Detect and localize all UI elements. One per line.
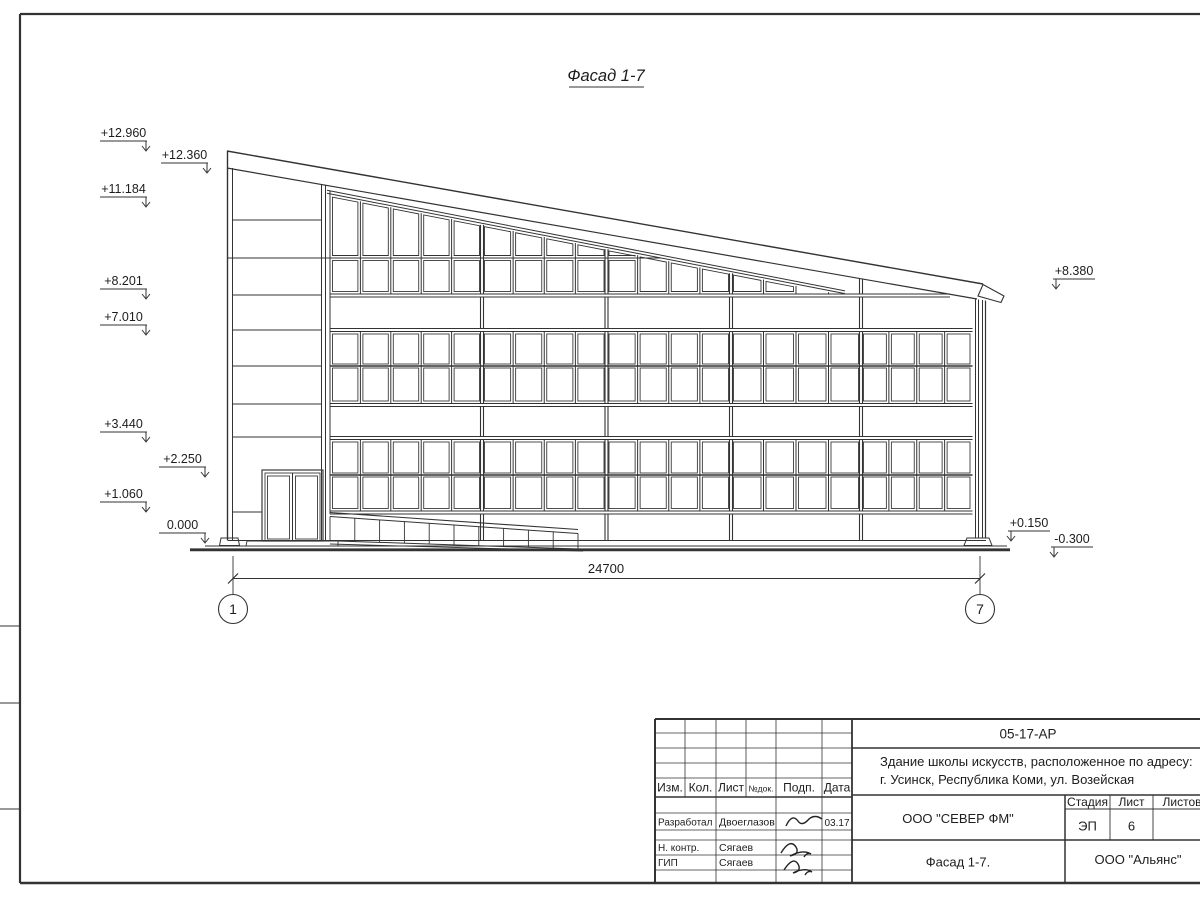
door-leaf [268,476,290,539]
window-pane [891,334,914,364]
window-pane [609,442,635,473]
glazing-pane [516,261,542,292]
glazing-pane [578,261,604,292]
window-pane [393,477,418,509]
elevation-value: +7.010 [104,310,143,324]
window-pane [702,368,728,401]
window-pane [393,334,418,364]
sheet-frame [0,14,1200,883]
elevation-marks: +12.960+12.360+11.184+8.201+7.010+3.440+… [100,126,1095,557]
tb-role-label: ГИП [658,858,678,869]
window-pane [454,442,479,473]
window-pane [333,368,358,401]
clerestory-glazing [330,191,863,514]
tb-stage-value: ЭП [1078,819,1097,834]
window-pane [947,334,970,364]
glazing-pane [734,275,762,291]
axis-number: 1 [229,601,237,617]
window-pane [454,477,479,509]
window-pane [864,334,887,364]
window-pane [424,368,449,401]
window-pane [702,477,728,509]
glazing-pane [393,261,418,292]
window-pane [516,368,542,401]
facade-drawing-canvas: Фасад 1-72470017+12.960+12.360+11.184+8.… [0,0,1200,900]
window-pane [363,442,388,473]
window-pane [734,334,762,364]
tb-column-header: Дата [824,781,851,795]
window-pane [831,368,859,401]
glazing-pane [640,257,666,292]
tb-doc-number: 05-17-АР [999,727,1056,742]
window-pane [766,442,794,473]
window-pane [891,477,914,509]
window-pane [547,442,573,473]
elevation-value: +1.060 [104,487,143,501]
glazing-pane [393,209,418,256]
window-pane [424,477,449,509]
tb-role-label: Разработал [658,817,713,829]
window-pane [363,334,388,364]
title-block: Изм.Кол.Лист№док.Подп.ДатаРазработалДвое… [655,719,1200,883]
window-pane [766,477,794,509]
window-pane [831,334,859,364]
elevation-mark-right: +0.150 [1007,516,1050,541]
window-pane [734,442,762,473]
window-pane [454,368,479,401]
glazing-pane [547,261,573,292]
glazing-pane [516,233,542,256]
window-pane [609,368,635,401]
elevation-mark-left: +12.360 [161,148,211,173]
window-pane [547,477,573,509]
window-pane [547,334,573,364]
clerestory-head-outer [327,190,845,291]
elevation-value: +8.201 [104,274,143,288]
glazing-pane [363,203,388,255]
tb-column-header: Подп. [783,781,815,795]
window-pane [799,442,827,473]
tb-sheet-value: 6 [1128,819,1135,834]
elevation-value: +3.440 [104,417,143,431]
window-pane [363,368,388,401]
window-pane [578,334,604,364]
glazing-pane [424,261,449,292]
tb-date: 03.17 [824,818,849,829]
glazing-pane [547,239,573,256]
window-pane [864,442,887,473]
tb-sheet-name: Фасад 1-7. [926,855,990,870]
elevation-value: +2.250 [163,452,202,466]
tb-column-header: Кол. [689,781,713,795]
signature [784,861,812,875]
roof-fascia-bottom [227,168,977,299]
elevation-mark-left: +2.250 [159,452,209,477]
glazing-pane [485,261,511,292]
tb-sheets-label: Листов [1163,795,1200,809]
tb-stage-label: Стадия [1067,795,1108,809]
signature [786,817,822,827]
window-pane [947,442,970,473]
window-pane [864,368,887,401]
window-pane [578,368,604,401]
window-pane [640,477,666,509]
window-pane [485,442,511,473]
window-pane [831,477,859,509]
elevation-value: 0.000 [167,518,198,532]
tb-person-name: Сягаев [719,857,754,869]
facade-band-lines [228,258,973,514]
elevation-mark-left: +7.010 [100,310,150,335]
window-pane [393,442,418,473]
landing-edge [246,541,247,546]
elevation-value: +0.150 [1010,516,1049,530]
window-pane [891,368,914,401]
window-pane [333,334,358,364]
window-pane [702,442,728,473]
window-pane [671,368,697,401]
tb-person-name: Двоеглазов [719,817,775,829]
window-pane [799,334,827,364]
elevation-value: -0.300 [1054,532,1089,546]
elevation-value: +12.360 [162,148,208,162]
window-pane [640,334,666,364]
window-pane [734,477,762,509]
window-pane [516,442,542,473]
glazing-pane [609,251,635,256]
window-pane [485,477,511,509]
window-pane [947,477,970,509]
drawing-title: Фасад 1-7 [567,67,645,85]
glazing-pane [363,261,388,292]
window-pane [671,334,697,364]
tb-person-name: Сягаев [719,842,754,854]
window-pane [578,442,604,473]
window-pane [333,477,358,509]
left-wall-base-cap [220,538,240,546]
dimension-group: 2470017 [219,556,995,624]
window-pane [919,442,942,473]
glazing-pane [333,197,358,255]
elevation-mark-left: +8.201 [100,274,150,299]
glazing-pane [333,261,358,292]
window-pane [671,477,697,509]
window-pane [609,334,635,364]
dimension-text: 24700 [588,561,624,576]
window-pane [947,368,970,401]
window-pane [766,368,794,401]
window-pane [734,368,762,401]
glazing-pane [609,261,635,292]
elevation-mark-left: +3.440 [100,417,150,442]
entrance-door [262,470,323,541]
window-pane [516,477,542,509]
elevation-mark-left: +12.960 [100,126,150,151]
tb-column-header: Изм. [657,781,683,795]
window-pane [766,334,794,364]
door-leaf [296,476,318,539]
window-pane [799,368,827,401]
window-pane [516,334,542,364]
window-pane [702,334,728,364]
elevation-mark-left: +11.184 [100,182,150,207]
window-pane [671,442,697,473]
window-pane [485,334,511,364]
access-ramp [330,513,583,552]
window-pane [547,368,573,401]
tb-client-org: ООО "Альянс" [1095,852,1182,867]
window-pane [393,368,418,401]
base-and-ground [190,538,1010,550]
elevation-mark-left: +1.060 [100,487,150,512]
tb-sheet-label: Лист [1118,795,1145,809]
window-bands [333,332,971,512]
window-pane [609,477,635,509]
glazing-pane [671,263,697,292]
tb-role-label: Н. контр. [658,843,699,854]
glazing-pane [454,261,479,292]
window-pane [485,368,511,401]
window-pane [333,442,358,473]
roof-end-beak [978,285,1004,303]
glazing-pane [702,269,728,291]
window-pane [864,477,887,509]
elevation-mark-left: 0.000 [159,518,209,543]
tb-designer-org: ООО "СЕВЕР ФМ" [902,811,1014,826]
window-pane [424,442,449,473]
drawing-title-group: Фасад 1-7 [567,67,645,87]
tb-column-header: №док. [749,784,774,794]
clerestory-head-inner [327,193,845,293]
window-pane [831,442,859,473]
window-pane [919,334,942,364]
elevation-mark-right: +8.380 [1052,264,1095,289]
window-pane [891,442,914,473]
elevation-mark-right: -0.300 [1050,532,1093,557]
right-wall-base-cap [964,538,992,546]
window-pane [363,477,388,509]
tb-project-name-line2: г. Усинск, Республика Коми, ул. Возейска… [880,772,1134,787]
window-pane [454,334,479,364]
window-pane [919,368,942,401]
elevation-value: +11.184 [101,182,146,196]
window-pane [578,477,604,509]
window-pane [799,477,827,509]
left-wall [228,151,326,541]
window-pane [424,334,449,364]
glazing-pane [454,221,479,256]
tb-project-name-line1: Здание школы искусств, расположенное по … [880,754,1193,769]
elevation-value: +12.960 [101,126,147,140]
glazing-pane [424,215,449,256]
roof [227,151,1004,303]
axis-number: 7 [976,601,984,617]
window-pane [919,477,942,509]
elevation-value: +8.380 [1055,264,1094,278]
tb-column-header: Лист [718,781,745,795]
drawing-sheet: Фасад 1-72470017+12.960+12.360+11.184+8.… [0,0,1200,900]
window-pane [640,368,666,401]
glazing-pane [485,227,511,256]
window-pane [640,442,666,473]
